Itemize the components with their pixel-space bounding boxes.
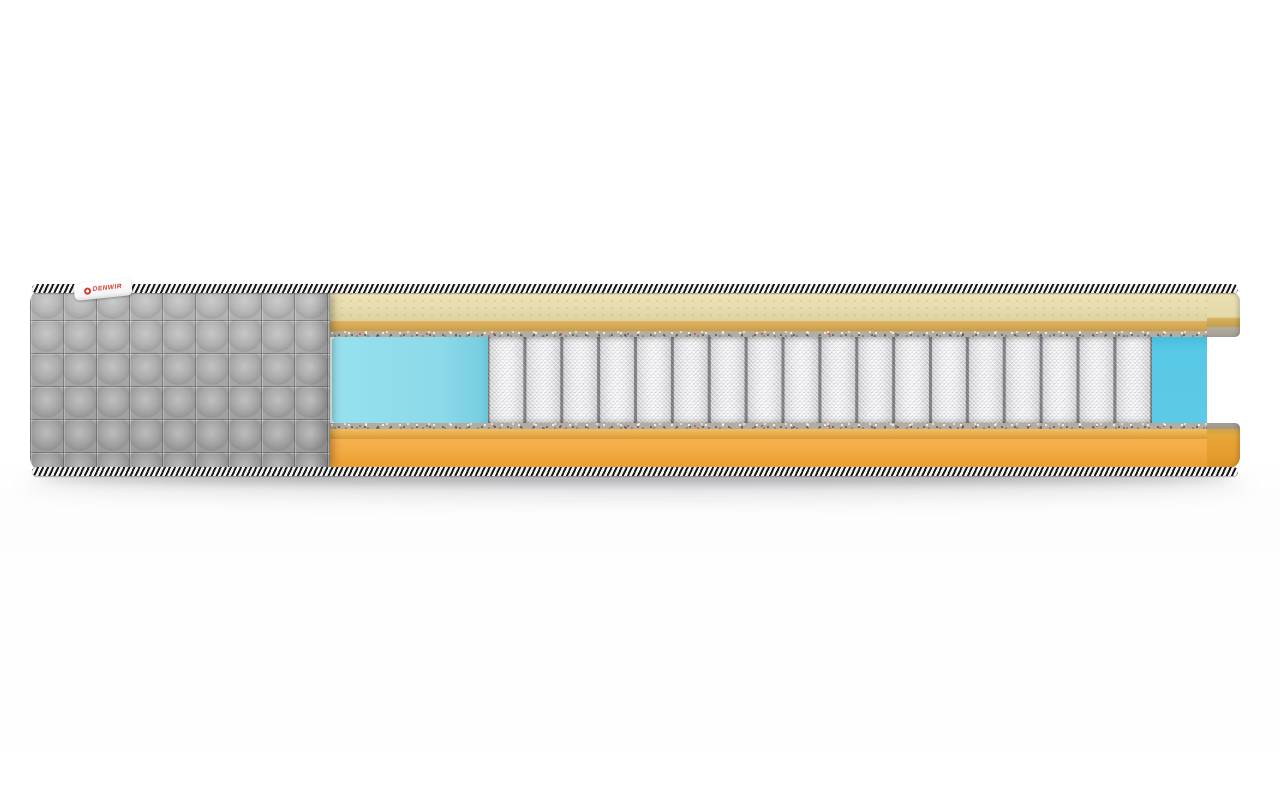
edge-rope-bottom xyxy=(32,467,1238,476)
foam-block-left xyxy=(332,337,488,423)
top-foam-sheet xyxy=(330,321,1207,331)
top-comfort-foam-layer xyxy=(330,292,1207,321)
edge-rope-top xyxy=(32,284,1238,293)
felt-layer-top xyxy=(330,331,1207,337)
product-image: DENWIR xyxy=(0,0,1280,800)
bottom-foam-sheet xyxy=(330,429,1207,439)
end-face-top xyxy=(1207,292,1240,337)
foam-block-right xyxy=(1152,337,1207,423)
brand-label-text: DENWIR xyxy=(93,284,123,294)
brand-logo-icon xyxy=(84,287,92,295)
mattress-cutaway: DENWIR xyxy=(30,284,1240,476)
pocket-springs xyxy=(488,337,1152,423)
base-foam-layer xyxy=(330,439,1207,467)
end-face-bottom xyxy=(1207,423,1240,468)
quilted-cover-side xyxy=(30,287,330,473)
